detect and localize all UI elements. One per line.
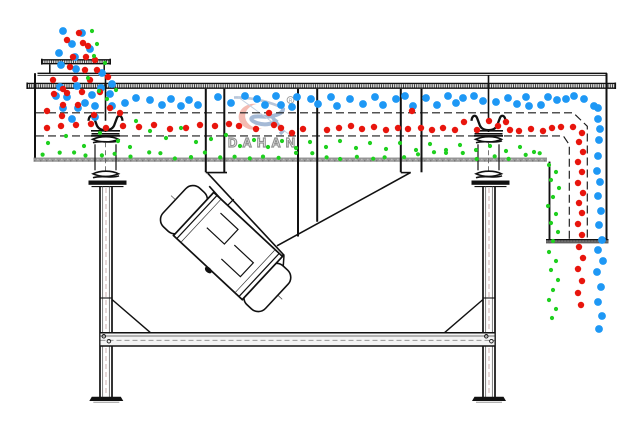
svg-text:DAHAN: DAHAN — [228, 135, 296, 150]
